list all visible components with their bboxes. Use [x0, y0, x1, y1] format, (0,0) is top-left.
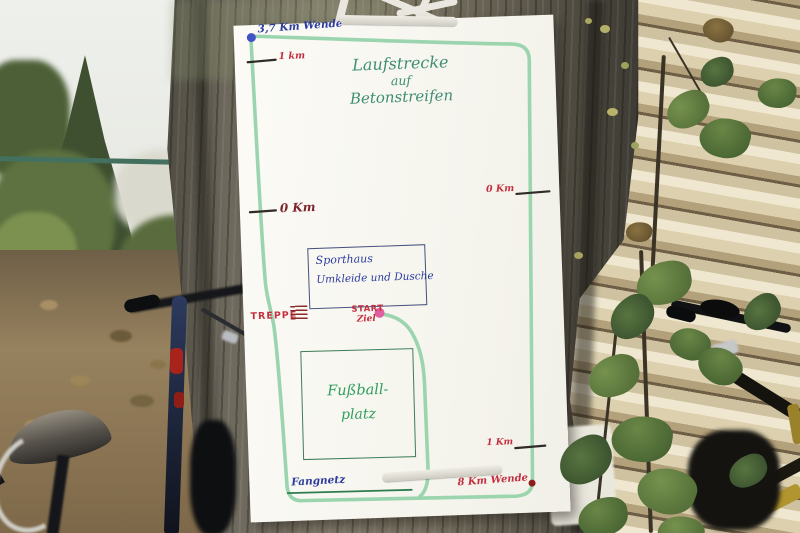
lichen-spot: [607, 108, 618, 116]
lichen-spot: [631, 142, 639, 149]
marker-km0-right: 0 Km: [482, 183, 514, 195]
label-start: START: [351, 304, 384, 315]
sign-title: Laufstrecke auf Betonstreifen: [323, 51, 480, 108]
bike-reflector: [174, 392, 184, 408]
sporthaus-line1: Sporthaus: [315, 252, 373, 267]
fallen-leaf: [110, 330, 132, 342]
stairs-icon: [290, 305, 308, 321]
fallen-leaf: [150, 360, 166, 369]
fallen-leaf: [130, 395, 154, 407]
lichen-spot: [621, 62, 629, 69]
marker-km1-top: 1 km: [278, 50, 305, 62]
football-line1: Fußball-: [302, 381, 413, 400]
sporthaus-line2: Umkleide und Dusche: [316, 270, 434, 286]
lichen-spot: [600, 25, 610, 33]
fallen-leaf: [40, 300, 58, 310]
marker-km1-bottom: 1 Km: [486, 437, 513, 448]
lichen-spot: [574, 252, 583, 259]
photo-scene: 3,7 Km Wende 1 km Laufstrecke auf Betons…: [0, 0, 800, 533]
label-ziel: Ziel: [357, 314, 376, 325]
marker-km0-left: 0 Km: [280, 200, 316, 215]
bike-rear-parts: [190, 420, 236, 533]
net-line-path: [288, 489, 412, 494]
football-line2: platz: [303, 405, 414, 424]
bike-reflector: [170, 348, 183, 374]
fallen-leaf: [70, 375, 90, 386]
football-pitch-box: Fußball- platz: [300, 348, 416, 460]
route-map-sign: 3,7 Km Wende 1 km Laufstrecke auf Betons…: [233, 15, 570, 523]
lichen-spot: [585, 18, 592, 24]
sporthaus-box: Sporthaus Umkleide und Dusche: [307, 244, 427, 309]
